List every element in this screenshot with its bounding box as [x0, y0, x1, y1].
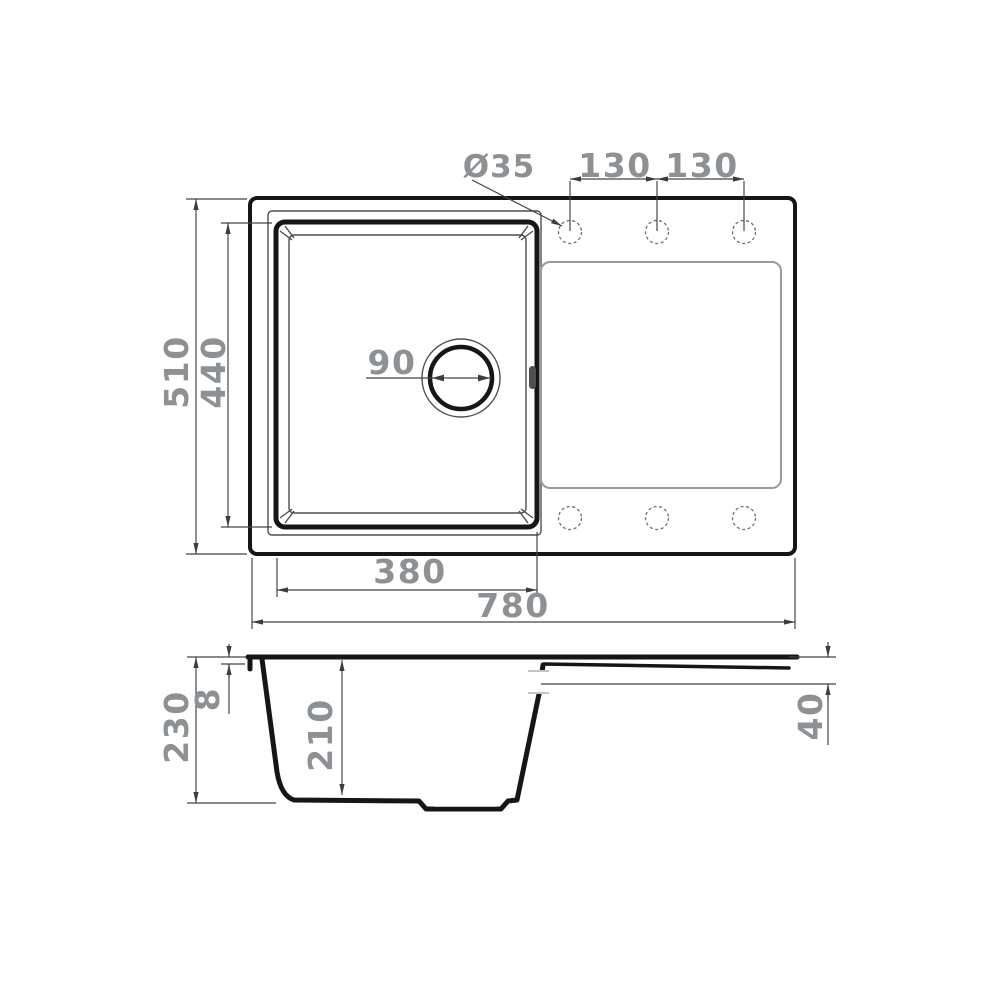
tap-hole: [733, 507, 756, 530]
dim-label-380: 380: [373, 552, 446, 591]
dim-bowl-inner-depth: 210: [301, 660, 342, 795]
dim-overall-width: 780: [252, 558, 795, 629]
dim-label-510: 510: [157, 335, 196, 408]
sink-outer-edge: [250, 198, 795, 554]
dim-overall-height: 230: [157, 657, 276, 803]
dim-label-130-a: 130: [578, 146, 651, 185]
dim-label-440: 440: [194, 335, 233, 408]
tap-holes: [559, 221, 756, 530]
top-view-dimensions: 510 440 Ø35 130 130 90: [157, 146, 795, 629]
top-view: [250, 198, 795, 554]
overflow-opening: [528, 670, 549, 694]
tap-hole: [646, 507, 669, 530]
dim-tap-hole-diameter: Ø35: [463, 149, 562, 226]
dim-label-780: 780: [476, 586, 549, 625]
drainboard-panel: [541, 262, 781, 488]
drawing-canvas: 510 440 Ø35 130 130 90: [0, 0, 1000, 1000]
dim-label-130-b: 130: [665, 146, 738, 185]
dim-label-90: 90: [368, 343, 417, 382]
dim-tap-hole-spacing: 130 130: [570, 146, 744, 231]
drainboard-underside: [544, 664, 789, 668]
dim-label-8: 8: [188, 687, 227, 711]
dim-label-40: 40: [791, 692, 830, 741]
dim-bowl-depth: 440: [194, 223, 272, 527]
dim-label-210: 210: [301, 698, 340, 771]
sink-dimension-drawing: 510 440 Ø35 130 130 90: [0, 0, 1000, 1000]
overflow-slot: [529, 366, 536, 389]
tap-hole: [559, 507, 582, 530]
dim-label-dia35: Ø35: [463, 149, 536, 185]
